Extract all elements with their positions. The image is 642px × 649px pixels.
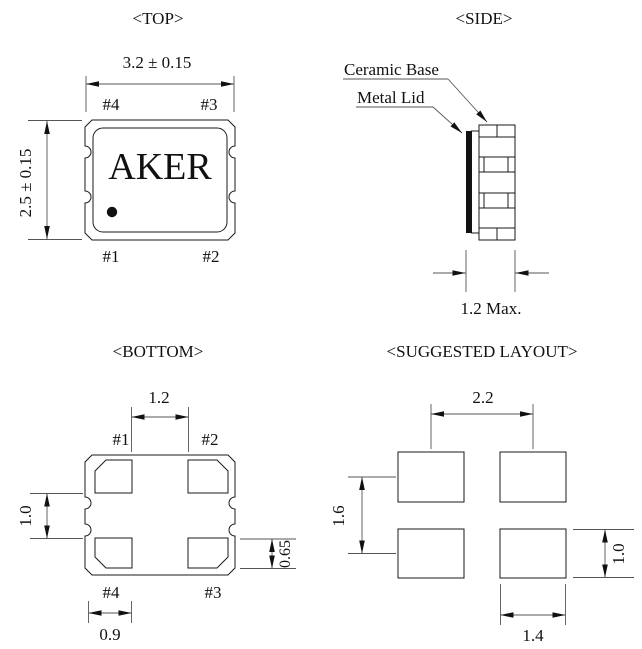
layout-pitch-x-label: 2.2 — [472, 388, 493, 407]
land-pad — [500, 529, 566, 578]
layout-pad-height-label: 1.0 — [609, 543, 628, 564]
pad-3 — [188, 538, 228, 568]
top-view-title: <TOP> — [133, 9, 184, 28]
bottom-pad-height-label: 0.65 — [277, 540, 294, 568]
pad-2 — [188, 460, 228, 493]
bottom-pad-gap-label: 1.0 — [16, 505, 35, 526]
bottom-view-title: <BOTTOM> — [113, 342, 204, 361]
ceramic-base-leader-arrow — [448, 79, 487, 122]
land-pad — [500, 452, 566, 502]
pin1-index-dot — [107, 207, 117, 217]
layout-pad-width-label: 1.4 — [522, 626, 544, 645]
metal-lid-bar — [466, 131, 472, 233]
land-pad — [398, 529, 464, 578]
top-height-dimension-label: 2.5 ± 0.15 — [16, 149, 35, 218]
castellation-pad — [497, 228, 515, 240]
layout-pitch-y-label: 1.6 — [329, 505, 348, 526]
technical-drawing: <TOP> 3.2 ± 0.15 #4 #3 2.5 ± 0.15 AKER #… — [0, 0, 642, 649]
metal-lid-label: Metal Lid — [357, 88, 425, 107]
side-pad — [484, 157, 508, 172]
bottom-pin4-label: #4 — [103, 583, 121, 602]
land-pad — [398, 452, 464, 502]
bottom-pin3-label: #3 — [205, 583, 222, 602]
top-width-dimension-label: 3.2 ± 0.15 — [123, 53, 192, 72]
top-pin3-label: #3 — [201, 95, 218, 114]
bottom-pin2-label: #2 — [202, 430, 219, 449]
top-view: <TOP> 3.2 ± 0.15 #4 #3 2.5 ± 0.15 AKER #… — [16, 9, 235, 266]
side-pad — [484, 193, 508, 208]
side-view-title: <SIDE> — [456, 9, 513, 28]
top-pin1-label: #1 — [103, 247, 120, 266]
bottom-package-outline — [85, 455, 235, 575]
pad-4 — [95, 538, 132, 568]
package-drawing-page: <TOP> 3.2 ± 0.15 #4 #3 2.5 ± 0.15 AKER #… — [0, 0, 642, 649]
side-thickness-dimension-label: 1.2 Max. — [461, 299, 522, 318]
layout-view: <SUGGESTED LAYOUT> 2.2 1.6 1.0 1.4 — [329, 342, 634, 645]
ceramic-body — [479, 125, 515, 240]
ceramic-wall — [472, 131, 480, 233]
bottom-pin1-label: #1 — [113, 430, 130, 449]
brand-marking: AKER — [108, 146, 212, 188]
top-pin4-label: #4 — [103, 95, 121, 114]
top-pin2-label: #2 — [203, 247, 220, 266]
ceramic-base-label: Ceramic Base — [344, 60, 439, 79]
castellation-pad — [497, 125, 515, 137]
side-view: <SIDE> Ceramic Base Metal Lid 1.2 Max. — [343, 9, 549, 318]
bottom-view: <BOTTOM> 1.2 #1 #2 1.0 0.65 #4 #3 0.9 — [16, 342, 296, 644]
layout-view-title: <SUGGESTED LAYOUT> — [387, 342, 578, 361]
bottom-pad-span-label: 1.2 — [148, 388, 169, 407]
metal-lid-leader-arrow — [433, 107, 462, 133]
pad-1 — [95, 460, 132, 493]
bottom-pad-width-label: 0.9 — [99, 625, 120, 644]
